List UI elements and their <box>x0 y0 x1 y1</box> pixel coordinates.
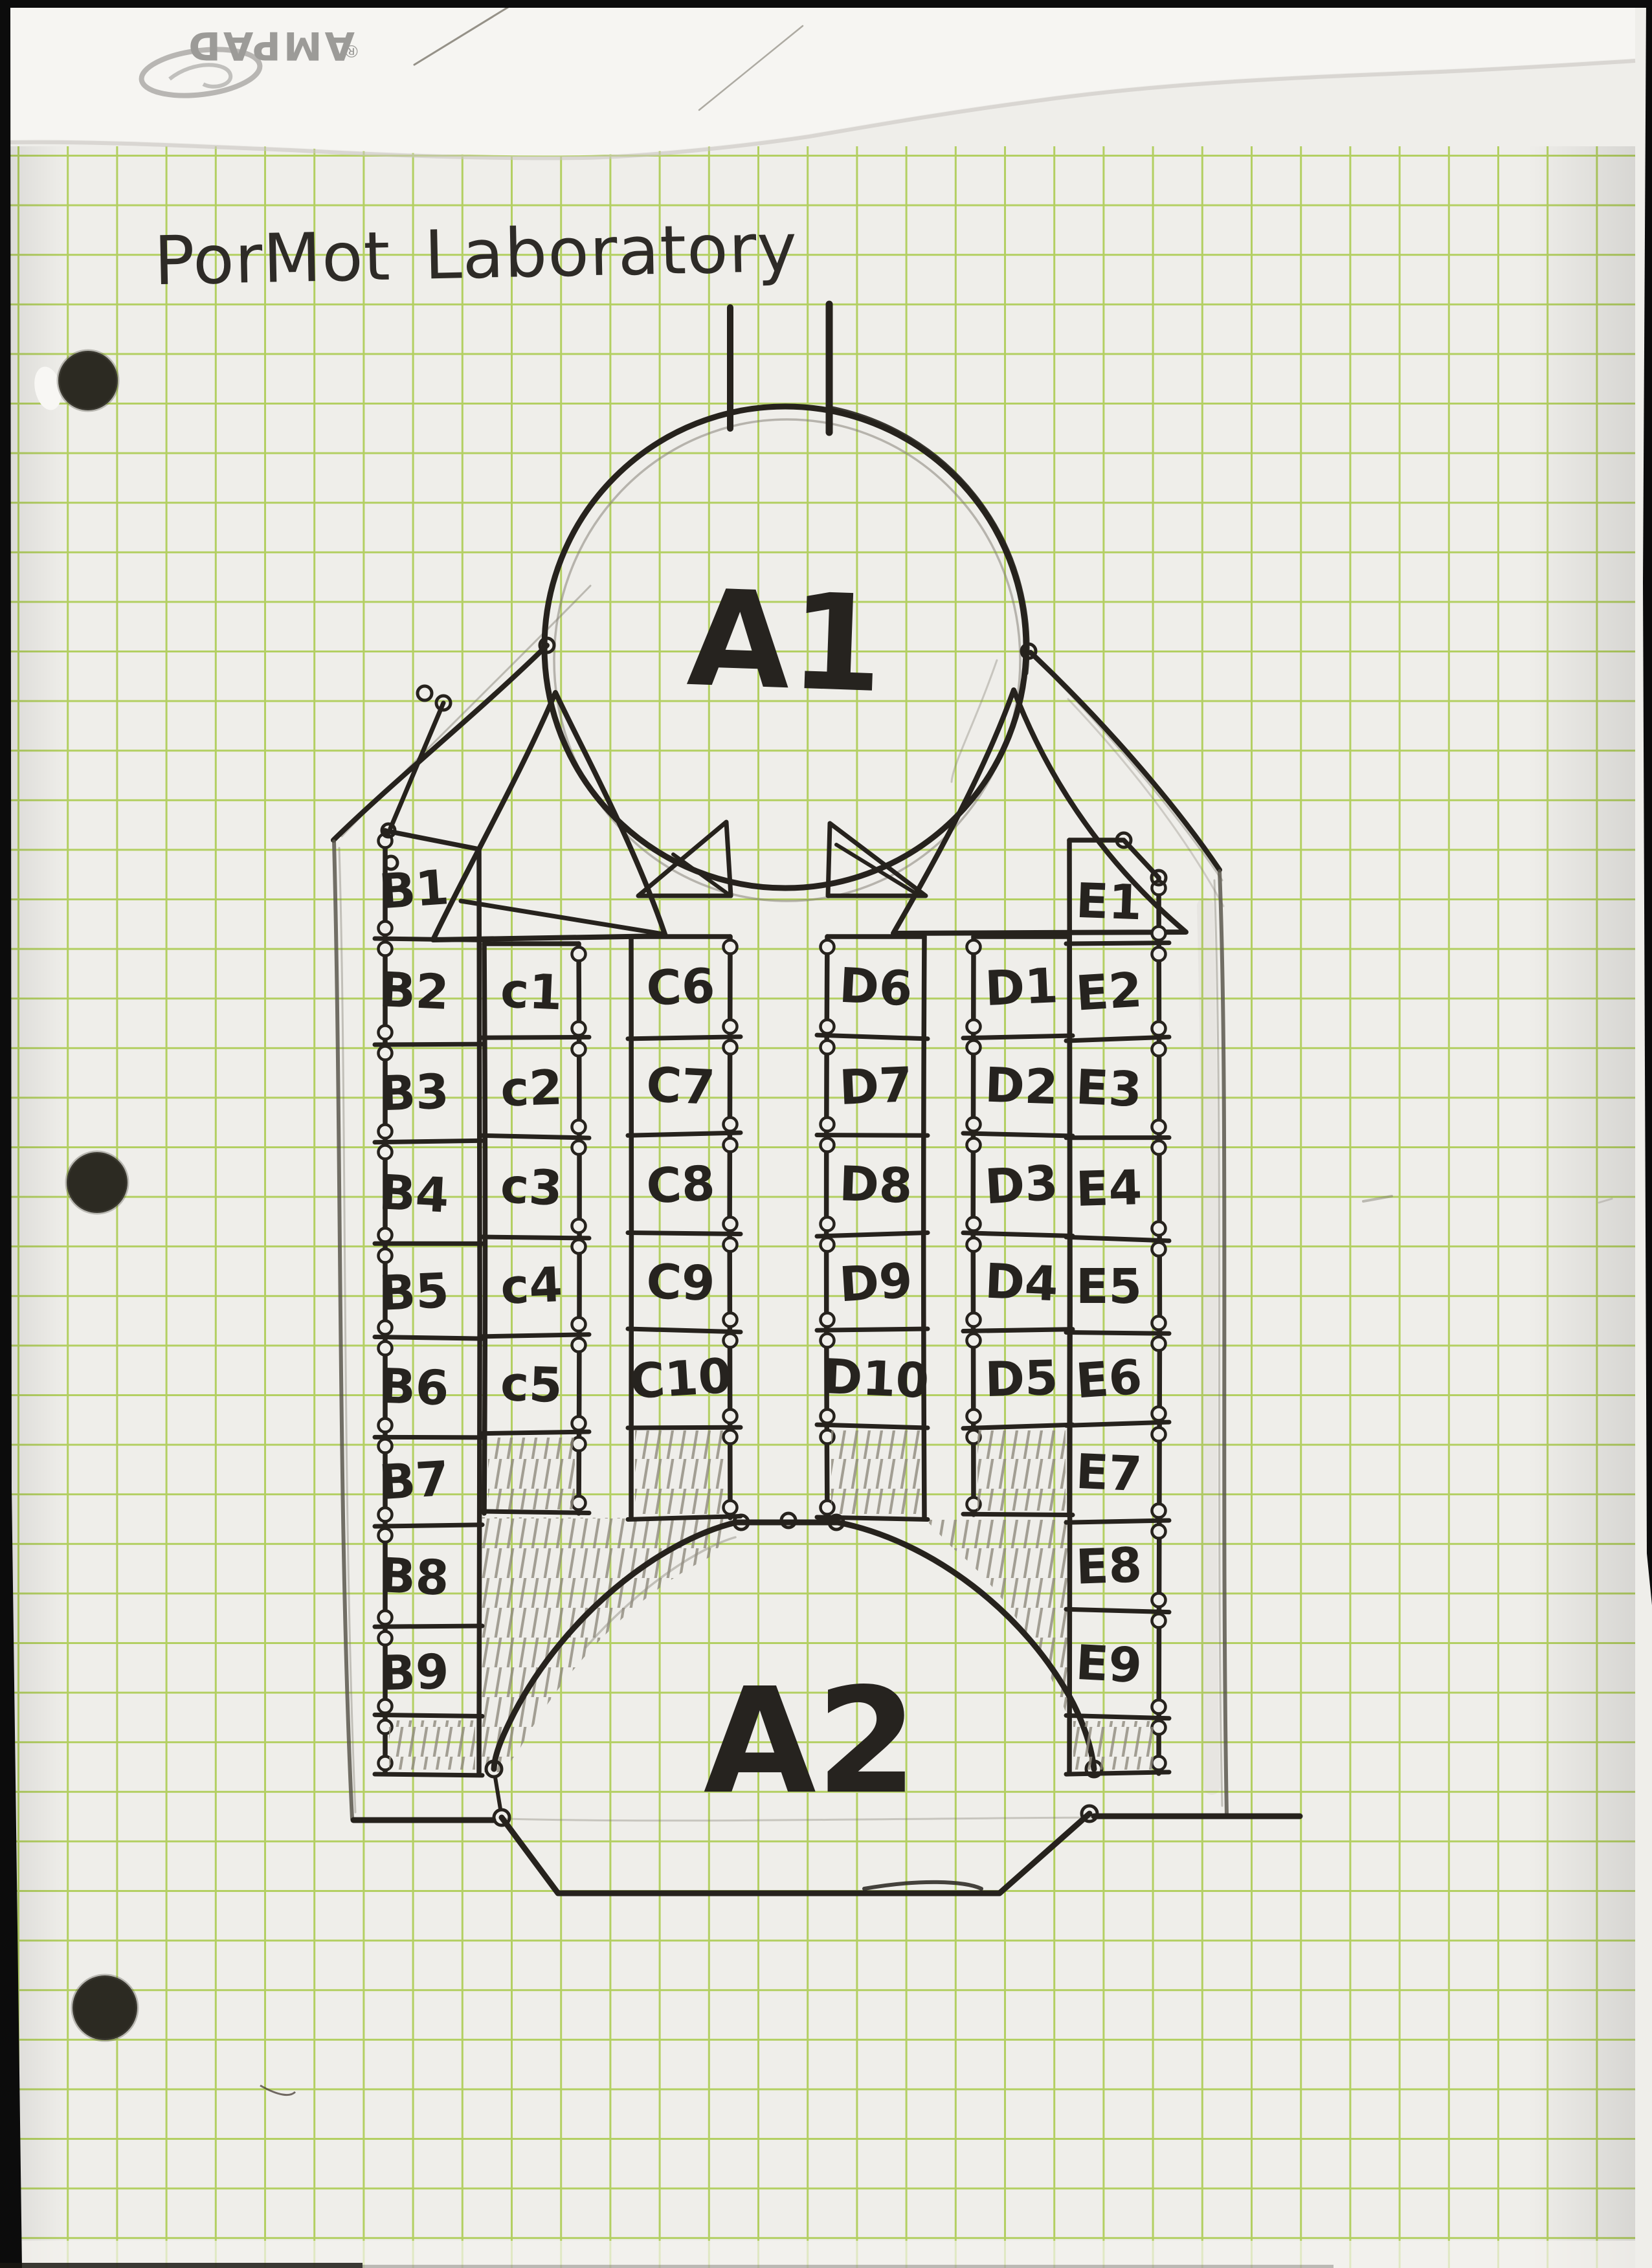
cell-wall <box>375 1437 482 1438</box>
hinge-ring <box>379 1125 392 1139</box>
hinge-ring <box>821 1217 834 1231</box>
scan-edge-right <box>1643 0 1652 1605</box>
hinge-ring <box>724 940 737 954</box>
hatched-cell <box>977 1430 1066 1511</box>
hinge-ring <box>1152 1428 1166 1441</box>
cell-label: E1 <box>1075 873 1143 931</box>
cell-label: C6 <box>645 959 716 1017</box>
hinge-ring <box>1152 948 1166 961</box>
cell-wall <box>924 937 924 1518</box>
cell-wall <box>1066 1715 1169 1718</box>
hole-punch <box>73 1975 137 2040</box>
hinge-ring <box>1152 1243 1166 1256</box>
hinge-ring <box>1152 1504 1166 1518</box>
room-a1-label: A1 <box>685 562 885 722</box>
hinge-ring <box>724 1041 737 1054</box>
grid-lines <box>9 146 1635 2268</box>
hinge-ring <box>379 1632 392 1645</box>
hinge-ring <box>724 1118 737 1131</box>
cell-label: c1 <box>499 962 563 1021</box>
hinge-ring <box>967 1139 981 1152</box>
cell-label: B5 <box>378 1263 451 1322</box>
hole-punch <box>58 351 118 410</box>
scanned-notebook-page: AMPAD ® PorMot Laboratory <box>0 0 1652 2268</box>
hinge-ring <box>724 1020 737 1034</box>
hinge-ring <box>821 1334 834 1348</box>
brand-stamp-text: AMPAD <box>186 23 355 68</box>
cell-wall <box>375 1774 482 1775</box>
brand-reg-mark: ® <box>343 41 360 60</box>
cell-label: B2 <box>378 962 451 1021</box>
hinge-ring <box>724 1410 737 1423</box>
cell-label: E6 <box>1074 1350 1144 1410</box>
cell-label: C9 <box>645 1254 716 1312</box>
cell-wall <box>375 1044 482 1045</box>
cell-label: E4 <box>1075 1160 1143 1217</box>
hinge-ring <box>572 1141 586 1155</box>
hatched-cell <box>831 1430 921 1514</box>
hinge-ring <box>967 1217 981 1231</box>
cell-label: D2 <box>984 1058 1059 1116</box>
cell-wall <box>628 1427 741 1428</box>
hinge-ring <box>1152 1700 1166 1714</box>
cell-wall <box>628 1133 741 1135</box>
cell-label: B4 <box>377 1164 450 1224</box>
cell-wall <box>1066 1332 1169 1333</box>
cell-label: E7 <box>1075 1444 1143 1502</box>
cell-label: B3 <box>378 1064 450 1122</box>
cell-wall <box>817 1329 928 1330</box>
hinge-ring <box>724 1238 737 1252</box>
hinge-ring <box>379 1611 392 1625</box>
hinge-ring <box>379 1419 392 1432</box>
cell-label: E8 <box>1075 1537 1143 1595</box>
cell-wall <box>817 1135 928 1136</box>
cell-wall <box>817 1425 928 1428</box>
cell-label: D5 <box>984 1350 1058 1408</box>
cell-wall <box>481 1237 589 1238</box>
cell-wall <box>1069 840 1070 1773</box>
cell-label: D8 <box>838 1156 913 1214</box>
hinge-ring <box>1152 1594 1166 1607</box>
hinge-ring <box>821 1410 834 1423</box>
cell-wall <box>1066 1609 1169 1612</box>
hinge-ring <box>379 1342 392 1355</box>
hinge-ring <box>1152 1407 1166 1421</box>
cell-wall <box>963 1036 1073 1038</box>
hinge-ring <box>379 942 392 956</box>
cell-wall <box>375 939 482 940</box>
cell-wall <box>1066 943 1169 944</box>
left-shading <box>9 146 67 2268</box>
cell-label: D3 <box>983 1155 1060 1216</box>
scan-edge-top <box>0 0 1652 8</box>
hinge-ring <box>572 1240 586 1254</box>
cell-label: E2 <box>1075 962 1144 1021</box>
hinge-ring <box>967 940 981 954</box>
hinge-ring <box>1152 1317 1166 1330</box>
hinge-ring <box>821 1020 834 1034</box>
hinge-ring <box>967 1238 981 1252</box>
cell-label: D6 <box>838 958 913 1017</box>
scan-edge-bottom-faint <box>363 2265 1334 2268</box>
hatched-cell <box>635 1430 726 1514</box>
cell-wall <box>963 1329 1073 1331</box>
hinge-ring <box>724 1334 737 1348</box>
hatched-cell <box>1073 1721 1155 1770</box>
cell-wall <box>963 1133 1073 1136</box>
hole-punch <box>67 1152 128 1213</box>
hinge-ring <box>1152 1022 1166 1036</box>
hinge-ring <box>572 1022 586 1036</box>
hinge-ring <box>967 1041 981 1054</box>
hinge-ring <box>379 922 392 935</box>
hinge-ring <box>379 1026 392 1039</box>
scan-edge-bottom <box>0 2263 363 2268</box>
cell-label: C7 <box>645 1057 716 1116</box>
hinge-ring <box>572 1120 586 1134</box>
hatched-cell <box>488 1438 575 1509</box>
hinge-ring <box>1152 1141 1166 1155</box>
cell-label: B7 <box>377 1451 451 1511</box>
cell-label: D10 <box>821 1349 930 1409</box>
hinge-ring <box>572 1219 586 1233</box>
room-a2-label: A2 <box>704 1657 918 1827</box>
hinge-ring <box>1152 1222 1166 1236</box>
hinge-ring <box>379 1321 392 1335</box>
cell-label: E9 <box>1075 1635 1143 1694</box>
cell-wall <box>628 1232 741 1234</box>
cell-wall <box>481 1432 589 1434</box>
cell-wall <box>481 1511 589 1513</box>
cell-wall <box>484 944 485 1513</box>
cell-label: D1 <box>984 958 1060 1017</box>
cell-label: D7 <box>838 1057 914 1116</box>
hinge-ring <box>1152 1337 1166 1351</box>
hinge-ring <box>967 1020 981 1034</box>
hinge-ring <box>379 1146 392 1159</box>
hatched-cell <box>389 1720 475 1770</box>
hinge-ring <box>821 1238 834 1252</box>
hinge-ring <box>379 1440 392 1453</box>
cell-wall <box>481 1135 589 1138</box>
cell-label: c3 <box>499 1158 564 1217</box>
cell-wall <box>481 1037 589 1038</box>
cell-wall <box>817 1517 928 1520</box>
cell-label: C8 <box>645 1156 716 1215</box>
cell-wall <box>628 1329 741 1332</box>
hinge-ring <box>724 1313 737 1327</box>
hinge-ring <box>572 1318 586 1331</box>
hinge-ring <box>967 1313 981 1327</box>
hinge-ring <box>1152 1525 1166 1539</box>
hinge-ring <box>572 1043 586 1056</box>
cell-wall <box>1066 1772 1169 1774</box>
cell-label: E5 <box>1076 1259 1142 1315</box>
hinge-ring <box>1152 1043 1166 1056</box>
hinge-ring <box>821 1041 834 1054</box>
cell-label: c5 <box>500 1356 563 1414</box>
hinge-ring <box>379 1249 392 1263</box>
cell-label: B9 <box>378 1644 449 1702</box>
right-shading <box>1528 146 1635 2268</box>
cell-wall <box>375 1140 482 1142</box>
cell-label: c2 <box>500 1060 563 1117</box>
hinge-ring <box>379 1047 392 1060</box>
cell-label: D4 <box>984 1254 1060 1313</box>
cell-wall <box>479 849 480 1773</box>
hinge-ring <box>967 1410 981 1423</box>
cell-wall <box>963 1514 1073 1515</box>
hinge-ring <box>1152 927 1166 940</box>
cell-label: B8 <box>378 1548 451 1606</box>
pencil-smudge-right <box>1205 906 1212 1786</box>
hinge-ring <box>379 1529 392 1542</box>
hinge-ring <box>572 948 586 961</box>
hinge-ring <box>379 1228 392 1242</box>
cell-wall <box>375 1626 482 1627</box>
cell-wall <box>375 1715 482 1716</box>
page-title: PorMot Laboratory <box>153 208 798 300</box>
cell-wall <box>375 1337 482 1339</box>
cell-label: c4 <box>500 1257 564 1315</box>
cell-label: D9 <box>838 1253 914 1313</box>
hinge-ring <box>724 1139 737 1152</box>
cell-wall <box>1066 1520 1169 1522</box>
cell-label: C10 <box>628 1348 733 1410</box>
hinge-ring <box>572 1339 586 1352</box>
hinge-ring <box>572 1417 586 1430</box>
hinge-ring <box>967 1118 981 1131</box>
hinge-ring <box>967 1334 981 1348</box>
cell-wall <box>375 1525 482 1526</box>
cell-wall <box>481 1335 589 1337</box>
cell-label: B6 <box>378 1359 450 1417</box>
hinge-ring <box>821 940 834 954</box>
cell-wall <box>963 1233 1073 1236</box>
hinge-ring <box>821 1118 834 1131</box>
hinge-ring <box>821 1313 834 1327</box>
hinge-ring <box>1152 1120 1166 1134</box>
cell-label: E3 <box>1075 1060 1143 1118</box>
hinge-ring <box>821 1139 834 1152</box>
hinge-ring <box>724 1217 737 1231</box>
hinge-ring <box>1152 1614 1166 1628</box>
cell-wall <box>628 1037 741 1039</box>
